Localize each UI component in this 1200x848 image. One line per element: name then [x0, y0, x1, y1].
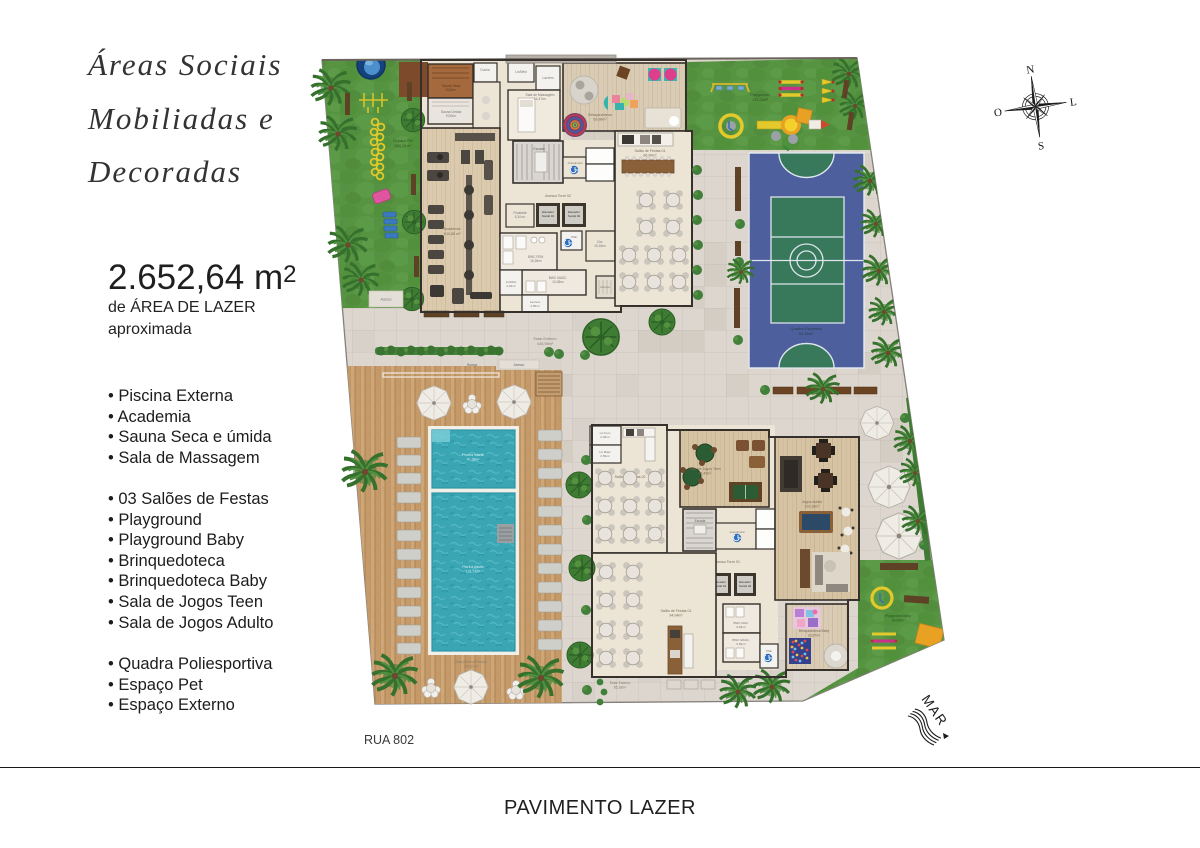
svg-text:543,76 m²: 543,76 m²: [394, 144, 412, 148]
svg-text:Jogos Adulto: Jogos Adulto: [802, 500, 823, 504]
svg-text:69,96m²: 69,96m²: [593, 118, 607, 122]
svg-text:16,26m²: 16,26m²: [530, 259, 542, 263]
svg-text:Ducha: Ducha: [480, 68, 489, 72]
svg-text:Acesso: Acesso: [380, 298, 391, 302]
svg-text:Lix/Méd: Lix/Méd: [515, 70, 526, 74]
svg-text:PNE: PNE: [766, 649, 772, 653]
svg-text:9,69m²: 9,69m²: [736, 625, 745, 629]
svg-text:Lav.fem: Lav.fem: [542, 76, 553, 80]
svg-text:2,95m²: 2,95m²: [530, 304, 539, 308]
svg-text:Playground: Playground: [750, 93, 769, 97]
svg-text:90,36m²: 90,36m²: [799, 331, 814, 336]
svg-text:9,00m²: 9,00m²: [446, 114, 457, 118]
svg-text:2,93m²: 2,93m²: [506, 284, 515, 288]
svg-text:Brinquedoteca: Brinquedoteca: [588, 113, 611, 117]
svg-text:Salão de Festas 01: Salão de Festas 01: [661, 609, 692, 613]
svg-text:Rampa: Rampa: [600, 285, 609, 289]
svg-text:15,18m²: 15,18m²: [594, 244, 606, 248]
svg-text:Sala de Jogos Teen: Sala de Jogos Teen: [689, 467, 721, 471]
svg-text:9,69m²: 9,69m²: [736, 642, 745, 646]
svg-text:94,04m²: 94,04m²: [669, 614, 683, 618]
svg-text:2,59m²: 2,59m²: [600, 454, 609, 458]
svg-text:Brinquedoteca Baby: Brinquedoteca Baby: [799, 629, 830, 633]
svg-text:MAR: MAR: [919, 692, 951, 729]
svg-text:Rampa: Rampa: [467, 363, 478, 367]
svg-text:358,16m²: 358,16m²: [464, 665, 479, 669]
svg-text:Espaço Pet: Espaço Pet: [393, 139, 413, 143]
svg-text:45,49m²: 45,49m²: [698, 472, 712, 476]
svg-text:445,98m²: 445,98m²: [537, 342, 554, 346]
svg-text:PNE: PNE: [571, 235, 577, 239]
svg-text:Antecâmara: Antecâmara: [567, 161, 583, 165]
svg-text:104,85 m²: 104,85 m²: [443, 232, 461, 236]
svg-text:Playground Baby: Playground Baby: [885, 614, 911, 618]
svg-text:Antecâmara: Antecâmara: [729, 530, 745, 534]
svg-text:Estar Externo: Estar Externo: [610, 681, 631, 685]
svg-text:103,38m²: 103,38m²: [804, 505, 820, 509]
svg-text:10,08m²: 10,08m²: [552, 280, 564, 284]
svg-text:Acesso Torre 01: Acesso Torre 01: [714, 560, 740, 564]
svg-text:Área Externa Piscina: Área Externa Piscina: [455, 660, 487, 664]
svg-text:132,23m²: 132,23m²: [752, 98, 769, 102]
svg-text:Academia: Academia: [444, 227, 462, 231]
svg-text:14,47m²: 14,47m²: [534, 97, 547, 101]
svg-text:Acesso: Acesso: [514, 363, 525, 367]
svg-text:O: O: [993, 106, 1003, 119]
svg-text:Acesso Torre 02: Acesso Torre 02: [545, 194, 571, 198]
svg-text:Piscina Infantil: Piscina Infantil: [462, 453, 484, 457]
svg-text:Escada: Escada: [695, 519, 706, 523]
svg-text:Piscina Adulto: Piscina Adulto: [462, 565, 483, 569]
svg-text:9,00m²: 9,00m²: [446, 88, 457, 92]
svg-text:Social 02: Social 02: [568, 214, 581, 218]
svg-text:L: L: [1069, 96, 1078, 109]
svg-text:40,28m²: 40,28m²: [467, 458, 480, 462]
svg-text:Salão de Festas 01: Salão de Festas 01: [635, 149, 666, 153]
svg-text:65,18m²: 65,18m²: [614, 686, 627, 690]
svg-text:131,72m²: 131,72m²: [466, 570, 481, 574]
svg-text:33,87m²: 33,87m²: [808, 634, 821, 638]
svg-text:N: N: [1026, 64, 1036, 77]
svg-text:Social 01: Social 01: [542, 214, 555, 218]
svg-text:5,34 m²: 5,34 m²: [515, 215, 526, 219]
svg-text:S: S: [1037, 140, 1045, 153]
svg-text:Escada: Escada: [533, 147, 544, 151]
svg-text:2,46m²: 2,46m²: [600, 435, 609, 439]
svg-text:Social 02: Social 02: [739, 584, 752, 588]
svg-text:64,90m²: 64,90m²: [892, 619, 905, 623]
svg-text:Estar Externo: Estar Externo: [533, 337, 556, 341]
